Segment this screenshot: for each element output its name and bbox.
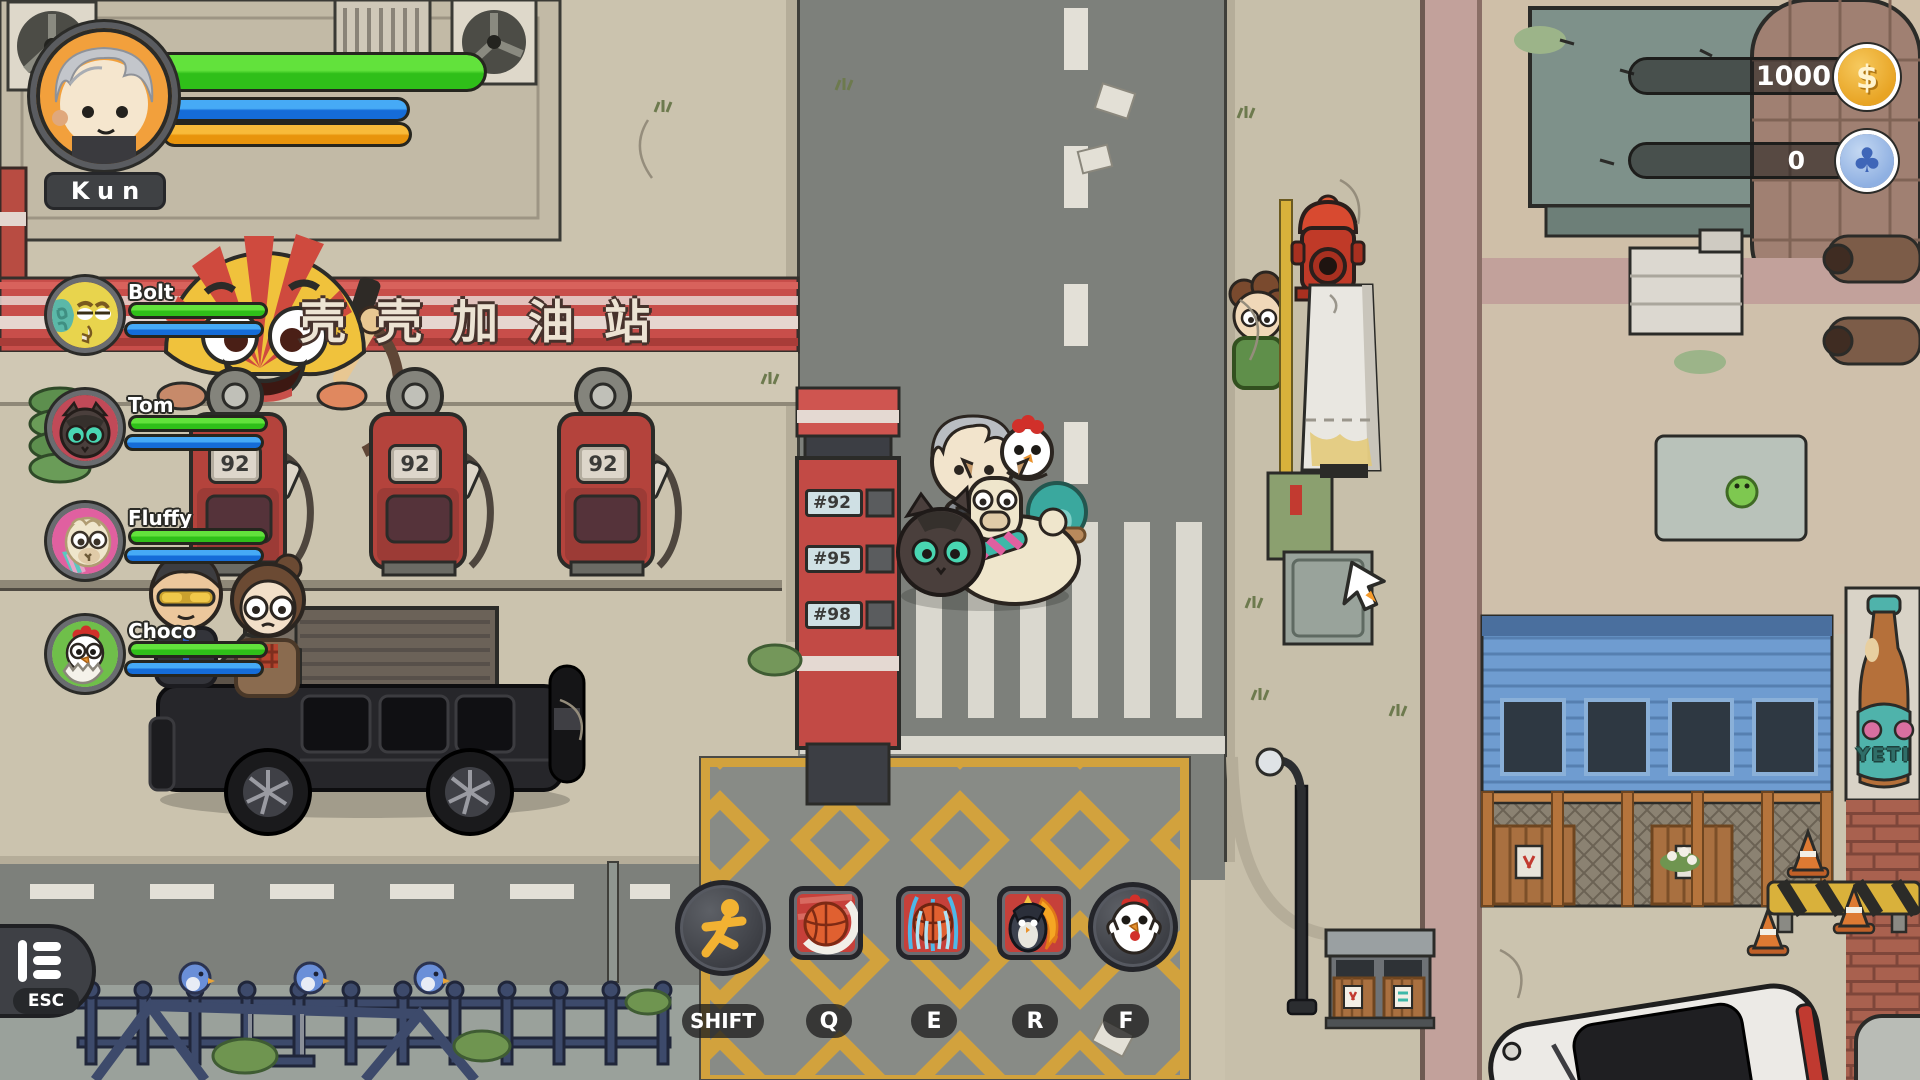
pet-row-choco[interactable]: Choco [44, 615, 284, 715]
pet-hp-bar [128, 641, 268, 658]
pet-row-tom[interactable]: Tom [44, 389, 284, 489]
player-portrait [36, 28, 172, 164]
player-nameplate: Kun [44, 172, 166, 210]
building-street-wall [1420, 0, 1482, 1080]
player-name: Kun [63, 177, 147, 205]
player-panel: Kun [30, 26, 510, 226]
red-truck-edge [0, 168, 26, 288]
clover-counter: 0 [1628, 142, 1856, 179]
pet-name: Bolt [128, 280, 173, 304]
blue-storefront [1482, 616, 1832, 792]
skill-slot-chicken[interactable] [1088, 882, 1178, 972]
fuel-price-98: #98 [805, 601, 863, 629]
esc-label-pill: ESC [13, 988, 79, 1014]
pet-mana-bar [124, 660, 264, 677]
pet-mana-bar [124, 434, 264, 451]
billboard-pillar [1302, 285, 1380, 478]
pet-avatar-choco [52, 621, 118, 687]
key-label-shift: SHIFT [682, 1004, 764, 1038]
pet-avatar-bolt [52, 282, 118, 348]
utility-box-green [1268, 473, 1332, 559]
fuel-price-92: #92 [805, 489, 863, 517]
currency-panel: 1000 $ 0 ♣ [1620, 40, 1920, 200]
dollar-coin-icon: $ [1838, 48, 1896, 106]
pet-mana-bar [124, 321, 264, 338]
pet-name: Tom [128, 393, 174, 417]
gray-car [1856, 1016, 1920, 1080]
pump-grade-label: 92 [388, 444, 442, 484]
pet-hp-bar [128, 415, 268, 432]
gold-amount: 1000 [1756, 61, 1831, 92]
chicken-summon-icon [1100, 894, 1166, 960]
frog-pond [1656, 436, 1806, 540]
fuel-price-sign [797, 388, 899, 804]
game-viewport: 壳壳加油站 92 92 92 #92 #95 #98 YETI Kun [0, 0, 1920, 1080]
menu-icon [16, 938, 64, 984]
pet-name: Fluffy [128, 506, 192, 530]
player-hp-fill [145, 55, 484, 89]
pet-avatar-tom [52, 395, 118, 461]
courtyard-middle [1482, 230, 1920, 634]
key-text: F [1118, 1009, 1133, 1034]
pet-name: Choco [128, 619, 196, 643]
esc-menu-button[interactable]: ESC [0, 924, 96, 1018]
skill-slot-e[interactable] [896, 886, 970, 960]
key-label-f: F [1103, 1004, 1149, 1038]
basketball-power-shot-icon [901, 891, 965, 955]
skill-slot-sprint[interactable] [675, 880, 771, 976]
key-label-e: E [911, 1004, 957, 1038]
pet-avatar-fluffy [52, 508, 118, 574]
kiosk [1326, 930, 1434, 1028]
basketball-throw-icon [794, 891, 858, 955]
fuel-price-95: #95 [805, 545, 863, 573]
key-text: Q [820, 1009, 839, 1034]
eagle-fire-dunk-icon [1002, 891, 1066, 955]
skill-bar: SHIFT Q E R F [660, 870, 1200, 1060]
player-energy-fill [165, 125, 409, 144]
player-avatar[interactable] [36, 28, 172, 164]
key-text: R [1027, 1009, 1044, 1034]
sign-pole [1280, 200, 1292, 473]
pet-mana-bar [124, 547, 264, 564]
road-horizontal [0, 856, 700, 985]
bush [749, 645, 801, 675]
gold-counter: 1000 [1628, 57, 1856, 95]
sprint-runner-icon [694, 897, 752, 959]
gas-station-sign: 壳壳加油站 [300, 286, 680, 352]
player-energy-bar [162, 122, 412, 147]
pet-hp-bar [128, 302, 268, 319]
skill-slot-r[interactable] [997, 886, 1071, 960]
pet-hp-bar [128, 528, 268, 545]
key-text: SHIFT [690, 1009, 756, 1033]
club-coin-icon: ♣ [1840, 134, 1894, 188]
esc-label: ESC [28, 991, 64, 1011]
clover-amount: 0 [1788, 146, 1805, 175]
key-label-r: R [1012, 1004, 1058, 1038]
player-hp-bar [142, 52, 487, 92]
player-mana-bar [162, 97, 410, 122]
skill-slot-q[interactable] [789, 886, 863, 960]
pet-row-bolt[interactable]: Bolt [44, 276, 284, 376]
player-mana-fill [165, 100, 407, 119]
key-label-q: Q [806, 1004, 852, 1038]
pet-row-fluffy[interactable]: Fluffy [44, 502, 284, 602]
key-text: E [926, 1009, 941, 1034]
poster-text: YETI [1856, 744, 1911, 766]
bottle-poster [1846, 588, 1920, 800]
pet-list: Bolt Tom [44, 276, 304, 746]
pump-grade-label: 92 [576, 444, 630, 484]
